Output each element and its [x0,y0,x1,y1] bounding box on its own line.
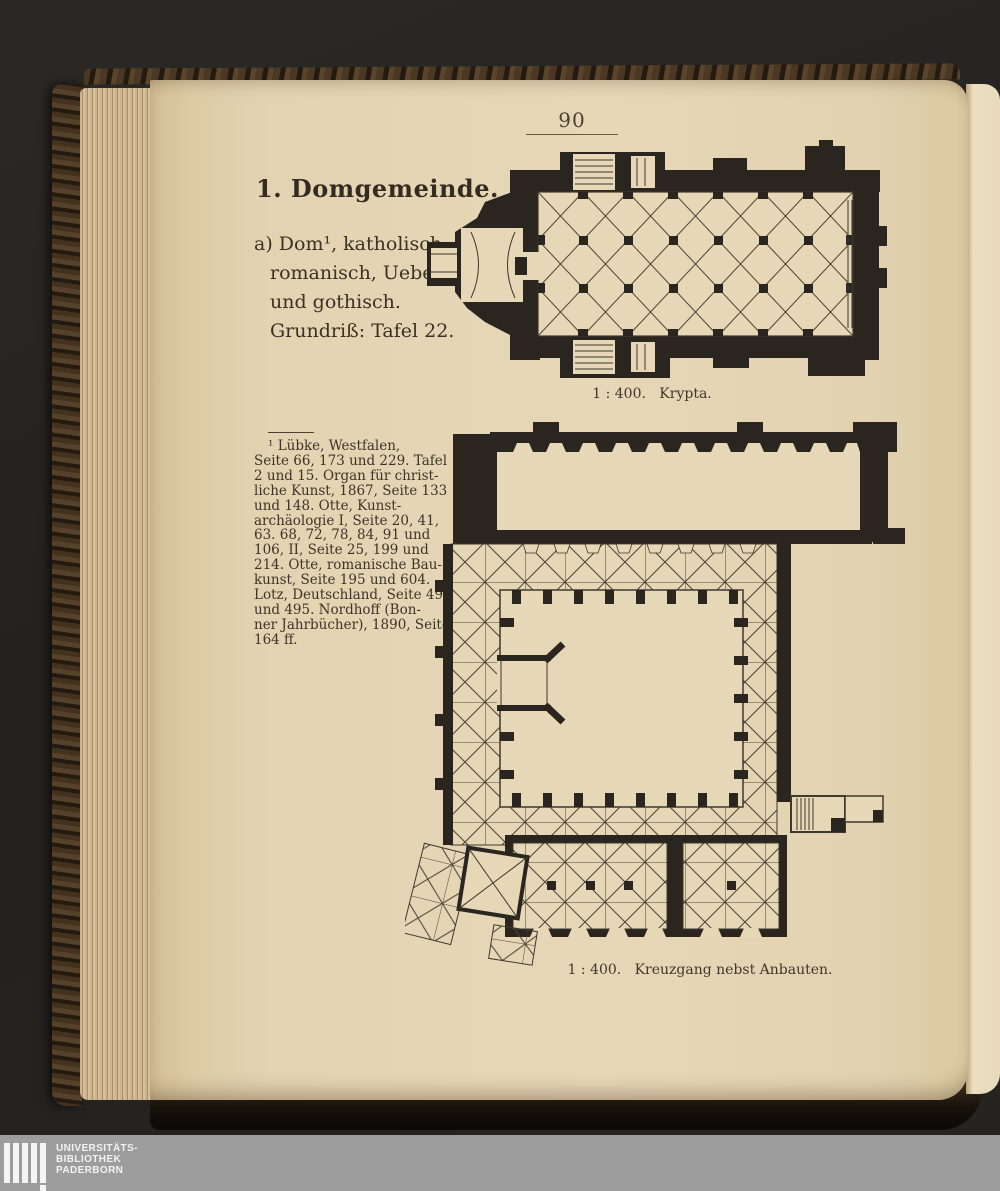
southwest-annex [405,843,537,965]
hall-interior [497,452,860,530]
book-spine-edge [52,84,82,1106]
east-porch [791,796,883,832]
page-number: 90 [522,108,622,132]
footnote-rule [268,432,314,433]
kreuzgang-caption: 1 : 400. Kreuzgang nebst Anbauten. [450,962,950,978]
scanned-book-photo: 90 1. Domgemeinde. a) Dom¹, katholisch; … [0,0,1000,1191]
kreuzgang-floor-plan [405,422,905,967]
watermark-line: PADERBORN [56,1166,138,1177]
page-stack-edge [80,88,152,1100]
watermark-line: BIBLIOTHEK [56,1155,138,1166]
page-number-rule [526,134,618,135]
library-watermark-bar: UNIVERSITÄTS- BIBLIOTHEK PADERBORN [0,1135,1000,1191]
next-page-edge [966,84,1000,1094]
library-watermark-text: UNIVERSITÄTS- BIBLIOTHEK PADERBORN [56,1144,138,1176]
krypta-caption: 1 : 400. Krypta. [472,386,832,402]
south-rooms [505,835,787,937]
book-page: 90 1. Domgemeinde. a) Dom¹, katholisch; … [150,80,968,1100]
library-logo-dot [40,1185,46,1191]
krypta-floor-plan [415,140,890,385]
